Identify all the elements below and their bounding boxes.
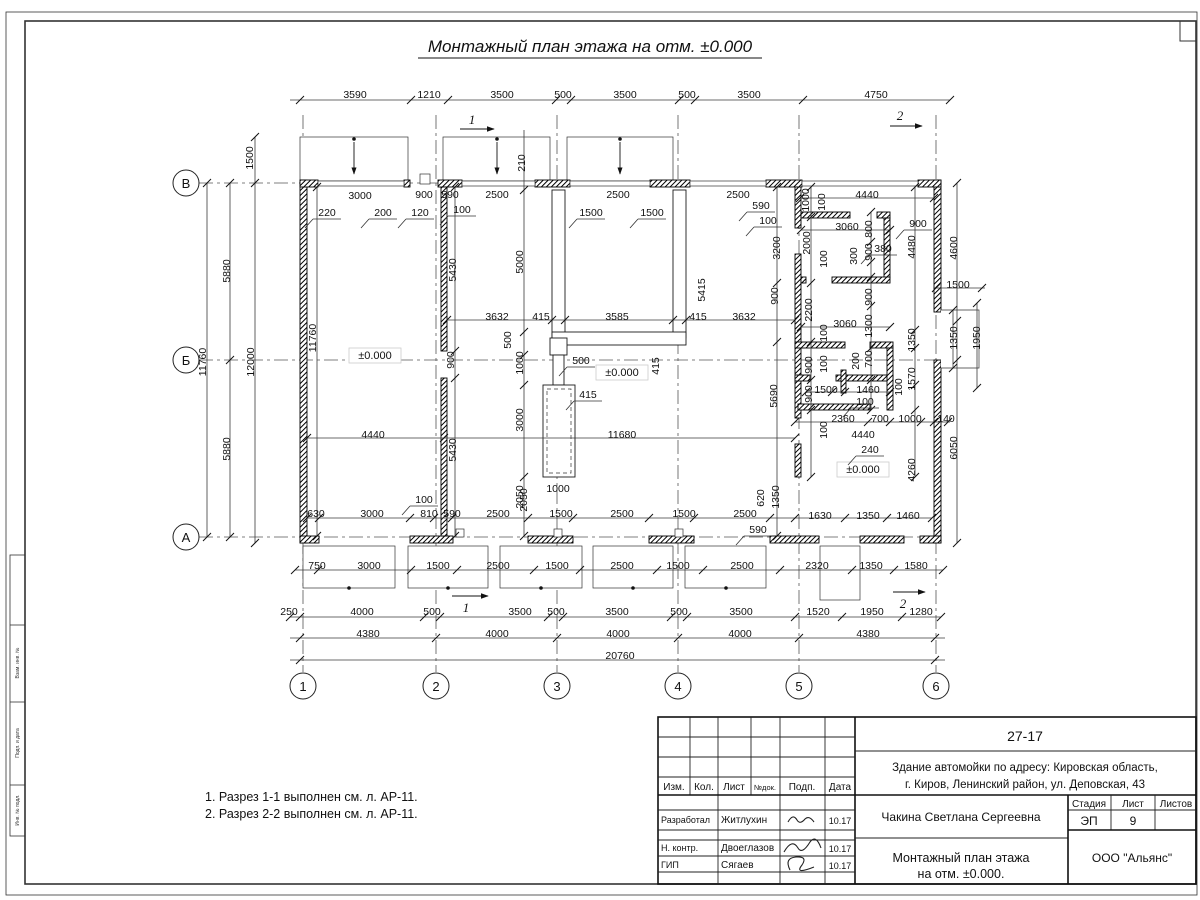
svg-text:415: 415	[579, 389, 597, 401]
dim-label: 1500	[666, 560, 690, 572]
col-kol: Кол.	[694, 782, 714, 793]
svg-text:415: 415	[689, 311, 707, 323]
dim-label: 900	[445, 351, 457, 369]
svg-text:620: 620	[755, 489, 767, 507]
note-line: 2. Разрез 2-2 выполнен см. л. АР-11.	[205, 807, 418, 821]
svg-text:5430: 5430	[447, 258, 459, 282]
svg-text:1000: 1000	[800, 188, 812, 212]
svg-text:3500: 3500	[508, 606, 532, 618]
dim-label: 3000	[514, 408, 526, 432]
signatures	[784, 817, 821, 871]
project-address-line2: г. Киров, Ленинский район, ул. Деповская…	[905, 779, 1145, 791]
svg-text:2500: 2500	[486, 508, 510, 520]
svg-text:4380: 4380	[356, 628, 380, 640]
dim-label: 2500	[606, 189, 630, 201]
dim-label: 2500	[726, 189, 750, 201]
axis-col-label: 5	[795, 679, 802, 694]
dim-label: 1580	[904, 560, 928, 572]
axis-row-label: В	[182, 176, 191, 191]
svg-text:2500: 2500	[606, 189, 630, 201]
row-role: Н. контр.	[661, 843, 698, 853]
svg-text:1950: 1950	[971, 326, 983, 350]
svg-text:415: 415	[650, 357, 662, 375]
svg-text:100: 100	[856, 396, 874, 408]
svg-text:1500: 1500	[640, 207, 664, 219]
list-header: Лист	[1122, 799, 1144, 810]
dim-label: 2500	[733, 508, 757, 520]
svg-text:20760: 20760	[605, 650, 634, 662]
dim-label: 5415	[696, 278, 708, 302]
project-address-line1: Здание автомойки по адресу: Кировская об…	[892, 762, 1158, 774]
axis-row-label: Б	[182, 353, 191, 368]
col-ndok: №док.	[754, 783, 776, 792]
dim-label: 1350	[856, 510, 880, 522]
dim-label: 4000	[728, 628, 752, 640]
dim-label: 1460	[856, 384, 880, 396]
svg-text:1500: 1500	[946, 279, 970, 291]
dim-label: 2200	[803, 298, 815, 322]
sheet-number: 9	[1130, 814, 1137, 828]
svg-text:2050: 2050	[518, 488, 530, 512]
dim-label: 500	[554, 89, 572, 101]
svg-text:3000: 3000	[357, 560, 381, 572]
side-stamp: Взам. инв. № Подп. и дата Инв. № подл.	[10, 555, 25, 836]
svg-text:3500: 3500	[613, 89, 637, 101]
dim-label: 3632	[485, 311, 509, 323]
dim-label: 120	[398, 207, 434, 228]
dim-label: 3632	[732, 311, 756, 323]
row-name: Двоеглазов	[721, 843, 774, 854]
dim-label: 900	[863, 288, 875, 306]
svg-text:2200: 2200	[803, 298, 815, 322]
svg-text:500: 500	[547, 606, 565, 618]
axis-col-label: 6	[932, 679, 939, 694]
dim-label: 100	[818, 421, 830, 439]
svg-text:100: 100	[453, 204, 471, 216]
svg-text:1570: 1570	[906, 367, 918, 391]
dim-label: 3000	[360, 508, 384, 520]
svg-text:5415: 5415	[696, 278, 708, 302]
dim-label: 3500	[508, 606, 532, 618]
svg-text:900: 900	[415, 189, 433, 201]
dim-label: 1950	[860, 606, 884, 618]
svg-text:750: 750	[308, 560, 326, 572]
dim-label: 1000	[514, 351, 526, 375]
svg-text:1210: 1210	[417, 89, 441, 101]
svg-text:1500: 1500	[666, 560, 690, 572]
svg-text:2500: 2500	[610, 508, 634, 520]
dim-label: 2320	[805, 560, 829, 572]
canopies	[300, 137, 673, 181]
svg-text:4000: 4000	[606, 628, 630, 640]
dim-label: 3500	[729, 606, 753, 618]
row-role: Разработал	[661, 815, 710, 825]
notes: 1. Разрез 1-1 выполнен см. л. АР-11. 2. …	[205, 790, 418, 821]
dim-label: 1570	[906, 367, 918, 391]
dim-label: 2500	[610, 560, 634, 572]
dim-label: 11760	[307, 324, 319, 353]
svg-text:500: 500	[502, 331, 514, 349]
dim-label: 20760	[605, 650, 634, 662]
svg-text:5430: 5430	[447, 438, 459, 462]
axis-row-label: А	[182, 530, 191, 545]
svg-text:3000: 3000	[360, 508, 384, 520]
row-role: ГИП	[661, 860, 679, 870]
svg-text:4000: 4000	[485, 628, 509, 640]
svg-text:210: 210	[516, 154, 528, 172]
dim-label: 220	[305, 207, 341, 228]
svg-text:1350: 1350	[856, 510, 880, 522]
svg-text:1500: 1500	[426, 560, 450, 572]
dim-label: 1350	[859, 560, 883, 572]
svg-text:220: 220	[318, 207, 336, 219]
svg-text:100: 100	[818, 250, 830, 268]
stamp-label: Взам. инв. №	[15, 648, 21, 679]
svg-text:1280: 1280	[909, 606, 933, 618]
svg-text:810: 810	[420, 508, 438, 520]
dim-label: 1500	[630, 207, 666, 228]
svg-text:3500: 3500	[729, 606, 753, 618]
level-mark: ±0.000	[358, 350, 392, 362]
door-leaf	[420, 174, 430, 184]
svg-text:900: 900	[803, 356, 815, 374]
svg-text:2000: 2000	[801, 231, 813, 255]
dim-label: 900	[769, 287, 781, 305]
svg-text:3500: 3500	[605, 606, 629, 618]
svg-text:630: 630	[307, 508, 325, 520]
dim-label: 900	[803, 356, 815, 374]
door-leaf	[554, 529, 562, 537]
svg-text:12000: 12000	[245, 347, 257, 376]
svg-text:900: 900	[909, 218, 927, 230]
col-data: Дата	[829, 782, 852, 793]
svg-text:1: 1	[469, 112, 476, 127]
section-marker-2-top: 2	[890, 108, 922, 126]
dim-label: 3500	[490, 89, 514, 101]
svg-text:2500: 2500	[726, 189, 750, 201]
row-date: 10.17	[829, 844, 852, 854]
svg-text:100: 100	[759, 215, 777, 227]
dim-label: 5000	[514, 250, 526, 274]
svg-text:500: 500	[572, 355, 590, 367]
svg-text:500: 500	[678, 89, 696, 101]
dim-label: 620	[755, 489, 767, 507]
dim-label: 3590	[343, 89, 367, 101]
svg-text:2500: 2500	[733, 508, 757, 520]
dim-label: 100	[818, 355, 830, 373]
dim-label: 590	[441, 189, 459, 201]
door-leaf	[675, 529, 683, 537]
svg-text:1500: 1500	[579, 207, 603, 219]
listov-header: Листов	[1160, 799, 1193, 810]
dim-label: 4440	[855, 189, 879, 201]
svg-text:6050: 6050	[948, 436, 960, 460]
svg-text:590: 590	[443, 508, 461, 520]
dim-label: 3200	[771, 236, 783, 260]
svg-text:2360: 2360	[831, 413, 855, 425]
svg-text:5000: 5000	[514, 250, 526, 274]
dim-label: 3000	[348, 190, 372, 202]
dim-label: 1500	[946, 279, 970, 291]
door-leaf	[456, 529, 464, 537]
dim-label: 5430	[447, 258, 459, 282]
dim-label: 1500	[569, 207, 605, 228]
svg-text:700: 700	[871, 413, 889, 425]
svg-text:11760: 11760	[197, 348, 209, 377]
svg-text:500: 500	[670, 606, 688, 618]
dim-label: 2500	[486, 560, 510, 572]
svg-text:2500: 2500	[730, 560, 754, 572]
svg-text:500: 500	[554, 89, 572, 101]
dim-label: 2500	[485, 189, 509, 201]
dim-label: 4480	[906, 235, 918, 259]
stage-value: ЭП	[1080, 814, 1097, 828]
dim-label: 750	[308, 560, 326, 572]
dim-label: 3060	[835, 221, 859, 233]
section-marker-1-bottom: 1	[452, 596, 488, 615]
dim-label: 1000	[800, 188, 812, 212]
stamp-label: Подп. и дата	[15, 728, 21, 758]
svg-text:900: 900	[445, 351, 457, 369]
stamp-label: Инв. № подл.	[15, 794, 21, 825]
svg-text:2500: 2500	[486, 560, 510, 572]
svg-text:1350: 1350	[859, 560, 883, 572]
dim-label: 500	[547, 606, 565, 618]
dim-label: 1350	[948, 326, 960, 350]
dim-label: 11760	[197, 348, 209, 377]
svg-text:900: 900	[769, 287, 781, 305]
dim-label: 700	[863, 350, 875, 368]
svg-text:3000: 3000	[514, 408, 526, 432]
dim-label: 200	[850, 352, 862, 370]
svg-text:2500: 2500	[485, 189, 509, 201]
dim-label: 1460	[896, 510, 920, 522]
dim-label: 630	[307, 508, 325, 520]
dim-label: 415	[689, 311, 707, 323]
svg-text:4000: 4000	[728, 628, 752, 640]
dim-label: 3000	[357, 560, 381, 572]
svg-text:1460: 1460	[856, 384, 880, 396]
doc-number: 27-17	[1007, 728, 1043, 744]
dim-label: 415	[650, 357, 662, 375]
dim-label: 1500	[814, 384, 838, 396]
svg-text:380: 380	[874, 243, 892, 255]
svg-text:250: 250	[280, 606, 298, 618]
svg-text:1500: 1500	[672, 508, 696, 520]
drawing-title-line1: Монтажный план этажа	[893, 851, 1030, 865]
dim-label: 4000	[350, 606, 374, 618]
col-podp: Подп.	[789, 782, 816, 793]
svg-text:2320: 2320	[805, 560, 829, 572]
svg-text:2500: 2500	[610, 560, 634, 572]
dim-label: 500	[670, 606, 688, 618]
dim-label: 1500	[549, 508, 573, 520]
svg-text:590: 590	[749, 524, 767, 536]
dim-label: 12000	[245, 347, 257, 376]
svg-text:1350: 1350	[948, 326, 960, 350]
dim-label: 1300	[863, 314, 875, 338]
dim-label: 900	[863, 243, 875, 261]
svg-text:590: 590	[441, 189, 459, 201]
dim-label: 3060	[833, 318, 857, 330]
axis-col-label: 1	[299, 679, 306, 694]
svg-text:3632: 3632	[485, 311, 509, 323]
svg-text:1500: 1500	[549, 508, 573, 520]
svg-text:4440: 4440	[851, 429, 875, 441]
dim-label: 6050	[948, 436, 960, 460]
page-title: Монтажный план этажа на отм. ±0.000	[428, 37, 753, 56]
dim-label: 1500	[672, 508, 696, 520]
svg-text:4750: 4750	[864, 89, 888, 101]
svg-text:2: 2	[900, 596, 907, 611]
dim-label: 810	[420, 508, 438, 520]
level-mark: ±0.000	[846, 464, 880, 476]
row-name: Сягаев	[721, 860, 754, 871]
dim-label: 2050	[518, 488, 530, 512]
svg-text:1500: 1500	[814, 384, 838, 396]
dim-label: 4600	[948, 236, 960, 260]
dim-label: 700	[871, 413, 889, 425]
svg-text:5880: 5880	[221, 437, 233, 461]
svg-text:1300: 1300	[863, 314, 875, 338]
svg-text:200: 200	[850, 352, 862, 370]
dim-label: 1950	[971, 326, 983, 350]
dim-label: 5880	[221, 437, 233, 461]
drawing-sheet: Взам. инв. № Подп. и дата Инв. № подл. М…	[0, 0, 1200, 900]
svg-text:1500: 1500	[545, 560, 569, 572]
dim-label: 1520	[806, 606, 830, 618]
dim-label: 1000	[898, 413, 922, 425]
dim-label: 2500	[610, 508, 634, 520]
dim-label: 1500	[545, 560, 569, 572]
svg-text:11680: 11680	[608, 429, 637, 441]
svg-text:3060: 3060	[833, 318, 857, 330]
svg-text:3585: 3585	[605, 311, 629, 323]
dim-label: 415	[532, 311, 550, 323]
dim-label: 250	[280, 606, 298, 618]
dim-label: 1500	[244, 146, 256, 170]
dim-label: 900	[803, 385, 815, 403]
col-izm: Изм.	[663, 782, 684, 793]
dim-label: 3585	[605, 311, 629, 323]
svg-text:1000: 1000	[898, 413, 922, 425]
svg-text:5880: 5880	[221, 259, 233, 283]
svg-text:100: 100	[415, 494, 433, 506]
svg-text:300: 300	[848, 247, 860, 265]
dim-label: 4000	[485, 628, 509, 640]
svg-text:4260: 4260	[906, 458, 918, 482]
dim-label: 800	[863, 220, 875, 238]
svg-text:3200: 3200	[771, 236, 783, 260]
dim-label: 1500	[426, 560, 450, 572]
axis-col-label: 4	[674, 679, 681, 694]
dim-label: 1630	[808, 510, 832, 522]
svg-text:1: 1	[463, 600, 470, 615]
stage-header: Стадия	[1072, 799, 1106, 810]
company-name: ООО "Альянс"	[1092, 851, 1172, 865]
svg-text:1000: 1000	[514, 351, 526, 375]
svg-text:5690: 5690	[768, 384, 780, 408]
dim-label: 500	[678, 89, 696, 101]
svg-text:3060: 3060	[835, 221, 859, 233]
svg-text:1350: 1350	[906, 328, 918, 352]
dim-label: 4440	[851, 429, 875, 441]
svg-text:100: 100	[818, 324, 830, 342]
col-list: Лист	[723, 782, 745, 793]
dim-label: 2500	[486, 508, 510, 520]
svg-text:3500: 3500	[737, 89, 761, 101]
dim-label: 5690	[768, 384, 780, 408]
svg-text:140: 140	[937, 413, 955, 425]
dim-label: 590	[443, 508, 461, 520]
dim-label: 900	[415, 189, 433, 201]
dim-label: 4000	[606, 628, 630, 640]
svg-text:100: 100	[818, 421, 830, 439]
dim-label: 11680	[608, 429, 637, 441]
dim-label: 100	[818, 250, 830, 268]
dim-label: 140	[937, 413, 955, 425]
dim-label: 5430	[447, 438, 459, 462]
svg-text:1950: 1950	[860, 606, 884, 618]
svg-text:1630: 1630	[808, 510, 832, 522]
svg-text:100: 100	[816, 193, 828, 211]
svg-text:100: 100	[818, 355, 830, 373]
svg-text:120: 120	[411, 207, 429, 219]
engineer-name: Чакина Светлана Сергеевна	[881, 810, 1040, 824]
level-mark: ±0.000	[605, 367, 639, 379]
dim-label: 3500	[613, 89, 637, 101]
dim-label: 1210	[417, 89, 441, 101]
svg-text:700: 700	[863, 350, 875, 368]
dim-label: 200	[361, 207, 397, 228]
dim-label: 300	[848, 247, 860, 265]
svg-text:1000: 1000	[546, 483, 570, 495]
axis-col-label: 2	[432, 679, 439, 694]
dim-label: 4750	[864, 89, 888, 101]
svg-text:1350: 1350	[770, 485, 782, 509]
svg-text:1460: 1460	[896, 510, 920, 522]
dim-label: 500	[423, 606, 441, 618]
dim-label: 1280	[909, 606, 933, 618]
svg-text:900: 900	[803, 385, 815, 403]
svg-text:500: 500	[423, 606, 441, 618]
dim-label: 2360	[831, 413, 855, 425]
dim-label: 2500	[730, 560, 754, 572]
axis-col-label: 3	[553, 679, 560, 694]
dim-label: 4440	[361, 429, 385, 441]
svg-text:4440: 4440	[855, 189, 879, 201]
dim-label: 100	[818, 324, 830, 342]
row-name: Житлухин	[721, 815, 767, 826]
floor-plan-drawing: Взам. инв. № Подп. и дата Инв. № подл. М…	[0, 0, 1200, 900]
svg-text:800: 800	[863, 220, 875, 238]
svg-text:4600: 4600	[948, 236, 960, 260]
dim-label: 500	[502, 331, 514, 349]
dim-label: 3500	[737, 89, 761, 101]
section-marker-1-top: 1	[460, 112, 494, 129]
svg-text:2: 2	[897, 108, 904, 123]
svg-text:240: 240	[861, 444, 879, 456]
title-block: 27-17 Здание автомойки по адресу: Кировс…	[658, 717, 1196, 884]
svg-text:3590: 3590	[343, 89, 367, 101]
dim-label: 3500	[605, 606, 629, 618]
svg-text:1500: 1500	[244, 146, 256, 170]
svg-text:590: 590	[752, 200, 770, 212]
svg-text:900: 900	[863, 243, 875, 261]
dim-label: 4380	[856, 628, 880, 640]
svg-text:415: 415	[532, 311, 550, 323]
svg-text:1520: 1520	[806, 606, 830, 618]
